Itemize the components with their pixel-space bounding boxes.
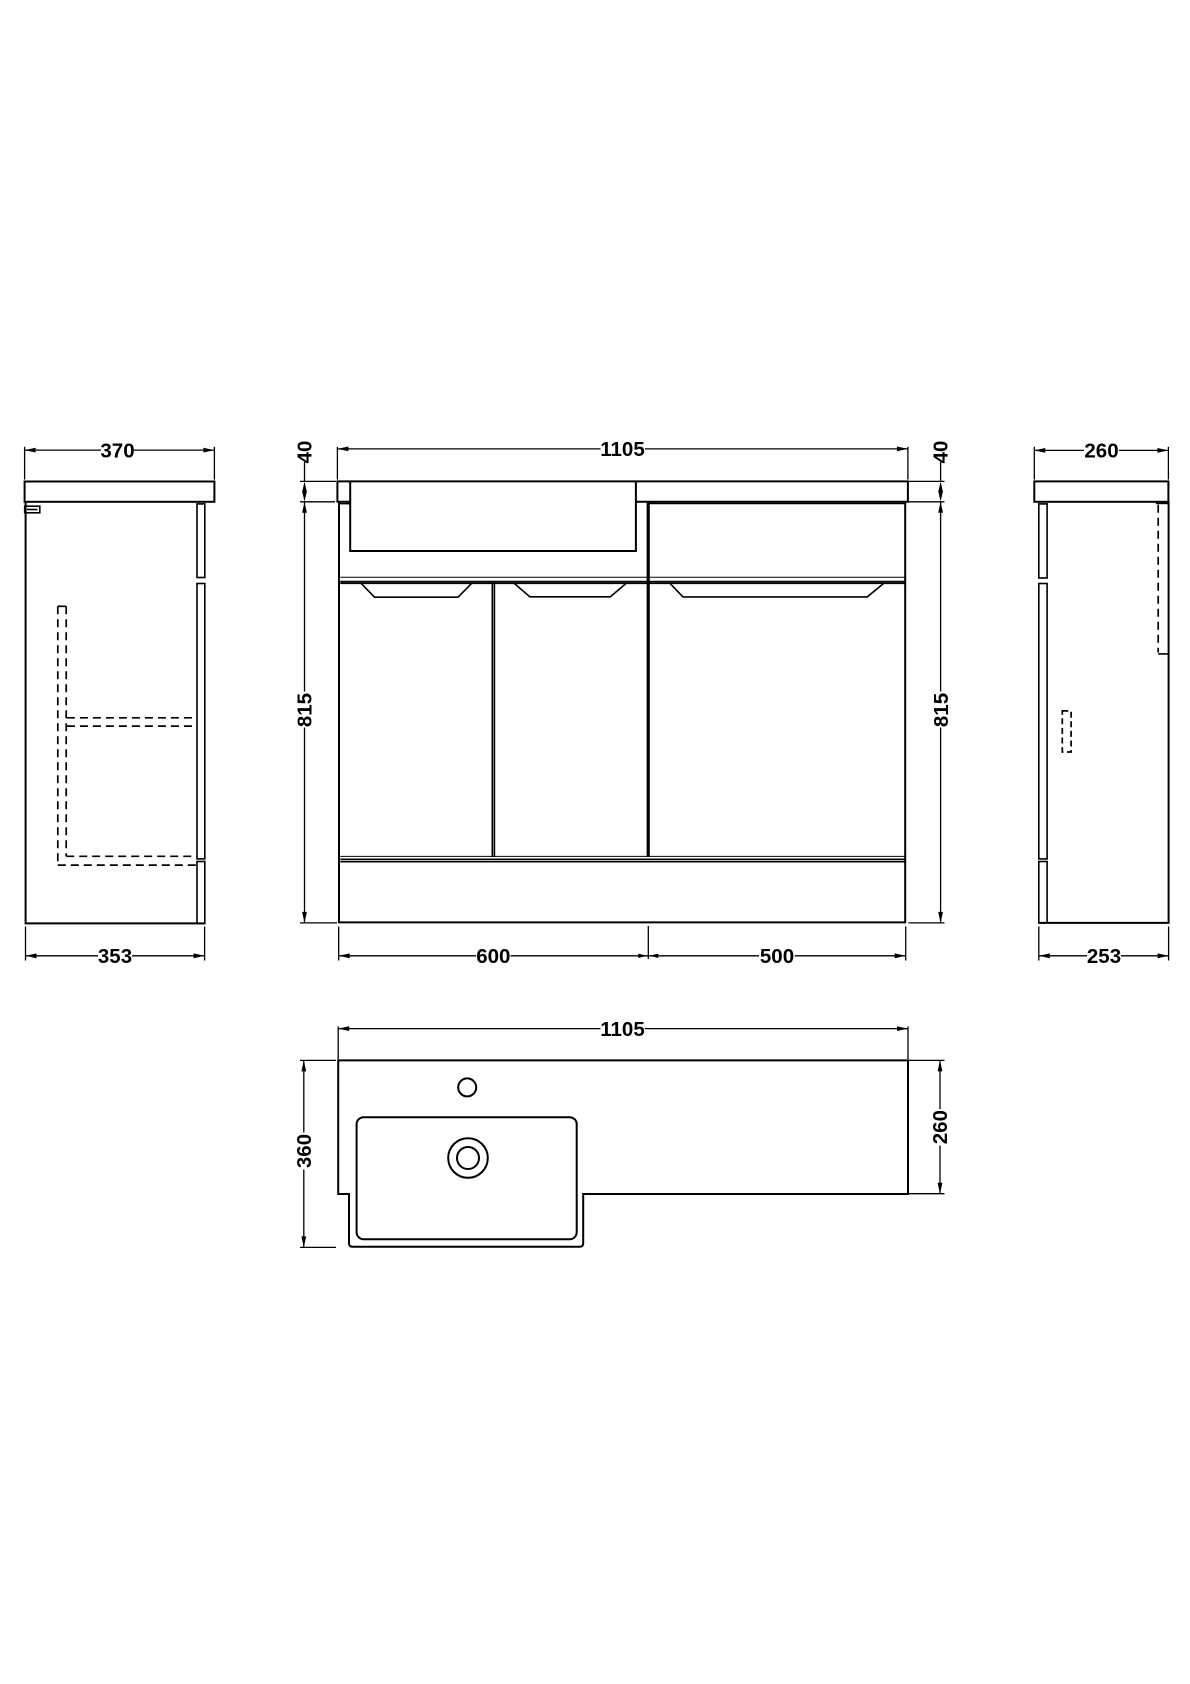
svg-text:353: 353 — [98, 945, 132, 968]
svg-text:260: 260 — [1084, 440, 1118, 463]
svg-text:370: 370 — [100, 439, 134, 462]
svg-text:1105: 1105 — [600, 438, 644, 461]
svg-text:815: 815 — [294, 693, 317, 727]
svg-text:1105: 1105 — [600, 1018, 644, 1041]
svg-text:260: 260 — [929, 1110, 952, 1144]
svg-text:360: 360 — [293, 1134, 316, 1168]
svg-text:815: 815 — [930, 693, 953, 727]
svg-text:500: 500 — [760, 945, 794, 968]
svg-text:40: 40 — [929, 441, 952, 464]
svg-text:600: 600 — [476, 945, 510, 968]
svg-text:253: 253 — [1087, 945, 1121, 968]
svg-text:40: 40 — [293, 441, 316, 464]
